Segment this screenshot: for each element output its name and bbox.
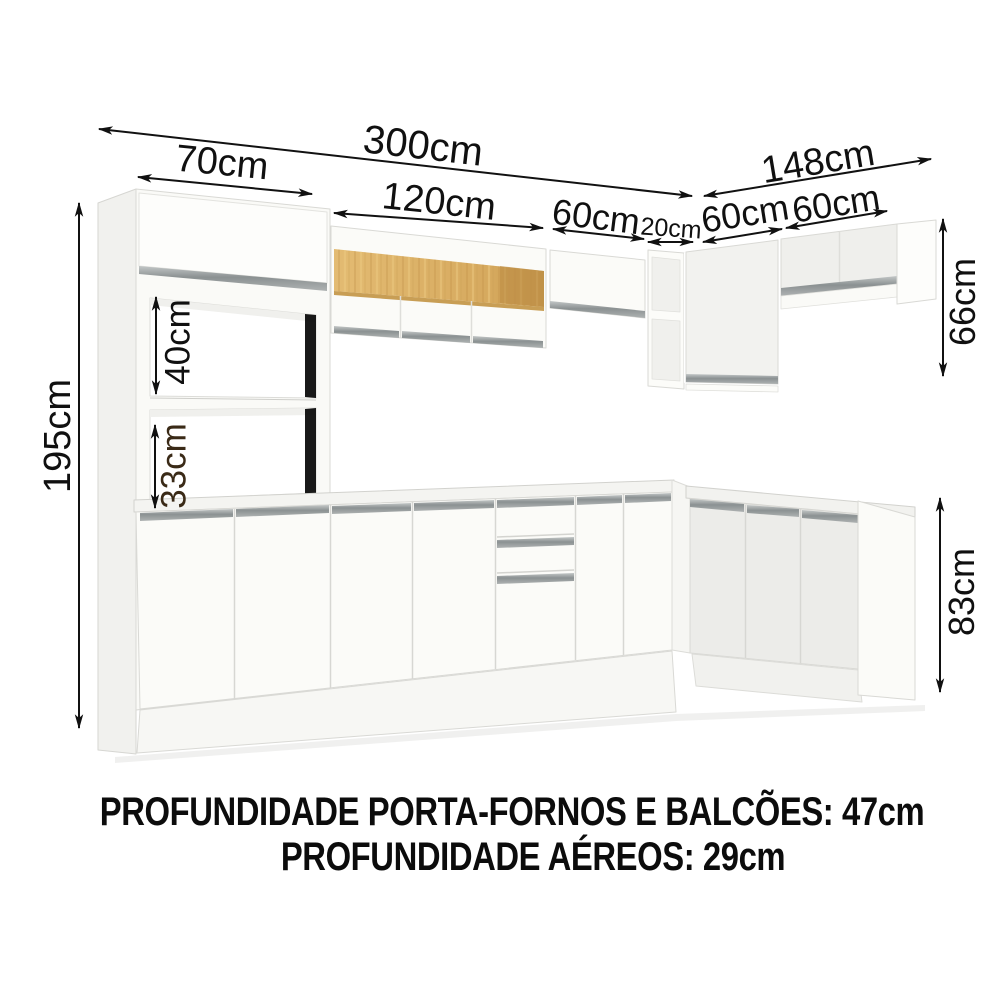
base-doors-right xyxy=(690,499,858,669)
oven-niche-upper-side-shade xyxy=(305,314,316,398)
depth-note-line1: PROFUNDIDADE PORTA-FORNOS E BALCÕES: 47c… xyxy=(100,792,925,832)
corner-wall-cabinet xyxy=(684,240,778,392)
right-run xyxy=(672,220,936,702)
dim-label-20cm: 20cm xyxy=(640,214,703,243)
wood-niche-inner-shadow xyxy=(500,266,544,307)
base-run-right xyxy=(672,480,915,702)
wall-cabinet-120 xyxy=(331,226,546,348)
base-end-panel xyxy=(858,501,915,700)
wall-shelf-20 xyxy=(648,250,684,389)
dim-label-40cm: 40cm xyxy=(161,299,196,385)
wall-cabinet-60-right xyxy=(781,220,936,309)
dim-label-66cm: 66cm xyxy=(945,258,981,346)
corner-wall-cabinet-front xyxy=(686,240,778,384)
product-dimension-diagram: 300cm 70cm 120cm 60cm 20cm 60cm 60cm 148… xyxy=(0,0,1000,1000)
base-corner-post xyxy=(672,480,690,653)
oven-niche-lower-side-shade xyxy=(305,408,316,494)
depth-note-line2: PROFUNDIDADE AÉREOS: 29cm xyxy=(281,837,785,877)
wall-shelf-20-opening-upper xyxy=(652,257,680,312)
corner-wall-cabinet-underside xyxy=(686,384,778,392)
dim-label-83cm: 83cm xyxy=(944,548,980,636)
dim-label-33cm: 33cm xyxy=(157,423,192,509)
dim-label-70cm: 70cm xyxy=(174,140,270,187)
wall-cabinet-end-panel xyxy=(897,220,936,304)
tall-cabinet-side-panel xyxy=(98,189,136,754)
base-run-left xyxy=(134,480,676,753)
wall-shelf-20-opening-lower xyxy=(652,319,680,381)
dim-label-60cm-a: 60cm xyxy=(550,194,642,240)
dim-label-195cm: 195cm xyxy=(39,379,77,493)
wall-cabinet-60 xyxy=(550,250,645,318)
